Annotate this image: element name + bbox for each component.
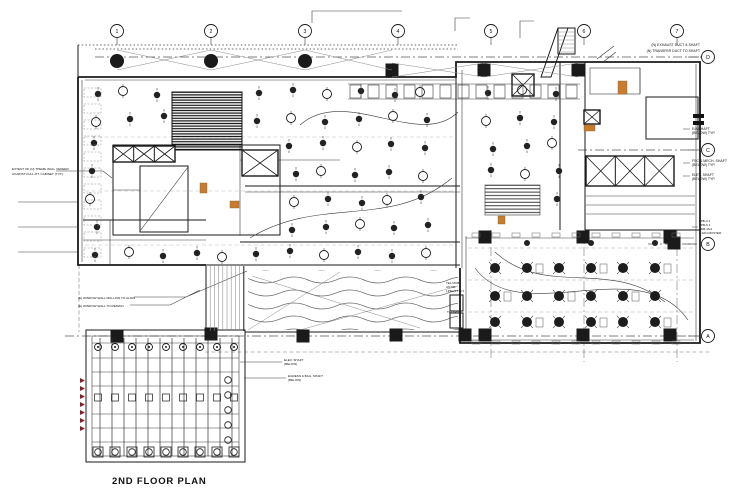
grid-col-6: 6 [583,29,586,35]
open-to-below-zone [248,270,458,330]
annotation-ea-shaft-2: (BELOW) TYP. [692,131,715,135]
floor-plan-drawing: 1 2 3 4 5 6 7 D C B A (N) EXHAUST DUCT &… [0,0,736,504]
schedule-block [485,185,540,215]
corridor-hatch [206,266,244,331]
annotation-pool-4: TEL (PT) [447,310,459,314]
plan-title: 2ND FLOOR PLAN [112,476,207,487]
annotation-fsc-shaft-2: (BELOW) TYP. [692,163,715,167]
grid-col-1: 1 [116,29,119,35]
desk-units [348,84,580,99]
annotation-tag-4: 1 FAN MASTER [699,231,722,235]
reference-lines [312,11,534,38]
revision-markers [80,378,85,431]
annotation-window-wall-2: (E) WINDOW WALL TO REMAIN [78,304,124,308]
annotation-top-right-2: (N) TRANSFER DUCT TO SHAFT [647,49,701,53]
grid-row-a: A [706,334,710,340]
annotation-elev-shaft-2: (BELOW) TYP. [692,177,715,181]
annotation-top-right-1: (N) EXHAUST DUCT & SHAFT [651,43,701,47]
annotation-theme-wall-1: EXTENT OF (N) THEME WALL VENEER [12,167,69,171]
annotation-theme-wall-2: AGAINST FULL-HT. CABINET (TYP.) [12,172,63,176]
left-dimension-lines [18,202,77,252]
grid-col-5: 5 [490,29,493,35]
grid-row-b: B [706,242,710,248]
exterior-stair [541,28,575,77]
floor-plan-canvas: 1 2 3 4 5 6 7 D C B A (N) EXHAUST DUCT &… [0,0,736,504]
annotation-pool-3: LPFL/1.TW 2 [446,289,465,293]
dense-ceiling-grid [172,92,242,150]
grid-col-7: 7 [676,29,679,35]
canopy-bracing [117,50,578,77]
grid-col-2: 2 [210,29,213,35]
grid-row-d: D [706,55,710,61]
grid-row-c: C [706,148,710,154]
annotation-center-elev-2: (BELOW) [284,362,297,366]
canopy-band [78,45,458,77]
annotation-center-egress-2: (BELOW) [288,378,301,382]
annotation-window-wall-1: (E) WINDOW WALL MULLION TO ALIGN [78,296,135,300]
grid-col-3: 3 [304,29,307,35]
lower-wing [86,330,245,462]
grid-col-4: 4 [397,29,400,35]
wing-fixtures [93,338,239,457]
